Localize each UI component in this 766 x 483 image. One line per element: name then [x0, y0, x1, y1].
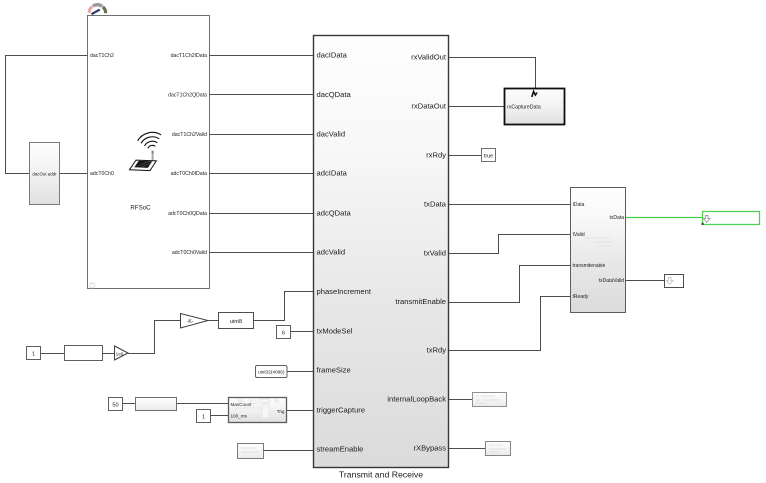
svg-text:rxRdy: rxRdy — [426, 151, 446, 160]
svg-text:dacT1Ch2: dacT1Ch2 — [90, 53, 114, 59]
svg-text:streamEnable: streamEnable — [317, 445, 364, 454]
svg-text:adcQData: adcQData — [317, 209, 352, 218]
svg-text:rxDataOut: rxDataOut — [411, 102, 446, 111]
svg-text:100_ms: 100_ms — [231, 414, 248, 419]
svg-text:adcIData: adcIData — [317, 169, 348, 178]
svg-text:dacT1Ch2QData: dacT1Ch2QData — [168, 93, 207, 99]
svg-text:dacIData: dacIData — [317, 51, 348, 60]
svg-text:adcT0Ch0Valid: adcT0Ch0Valid — [172, 250, 207, 256]
svg-text:tReady: tReady — [573, 294, 589, 300]
svg-text:Transmit and Receive: Transmit and Receive — [339, 470, 423, 480]
svg-text:dacT1Ch2Valid: dacT1Ch2Valid — [172, 132, 207, 138]
svg-text:Trig: Trig — [277, 409, 285, 414]
svg-text:transmitenable: transmitenable — [573, 263, 606, 269]
svg-text:triggerCapture: triggerCapture — [317, 406, 366, 415]
svg-text:txRdy: txRdy — [427, 346, 447, 355]
svg-text:50: 50 — [112, 403, 118, 409]
svg-text:transmitEnable: transmitEnable — [395, 297, 446, 306]
svg-text:rXBypass: rXBypass — [414, 444, 447, 453]
svg-text:adcValid: adcValid — [317, 248, 346, 257]
svg-text:1: 1 — [202, 415, 205, 421]
svg-text:rxCaptureData: rxCaptureData — [507, 105, 541, 111]
svg-text:uint32(4096): uint32(4096) — [258, 369, 285, 374]
svg-text:txDataValid: txDataValid — [599, 278, 624, 284]
svg-text:txData: txData — [424, 200, 447, 209]
svg-text:6: 6 — [282, 331, 285, 337]
svg-text:txModeSel: txModeSel — [317, 327, 353, 336]
svg-text:adcT0Ch0IData: adcT0Ch0IData — [171, 171, 207, 177]
svg-text:dacQData: dacQData — [317, 90, 352, 99]
svg-text:RFSoC: RFSoC — [130, 205, 151, 212]
svg-text:IData: IData — [573, 202, 585, 208]
svg-text:dacOut addr: dacOut addr — [32, 172, 57, 177]
svg-text:rxValidOut: rxValidOut — [411, 53, 447, 62]
svg-text:uint8: uint8 — [230, 319, 242, 325]
svg-text:1e6: 1e6 — [116, 351, 124, 356]
svg-text:dacValid: dacValid — [317, 130, 346, 139]
svg-text:MaxCount: MaxCount — [231, 402, 253, 407]
svg-text:internalLoopBack: internalLoopBack — [387, 395, 446, 404]
svg-text:IValid: IValid — [573, 232, 585, 238]
svg-text:adcT0Ch0: adcT0Ch0 — [90, 171, 114, 177]
svg-text:txData: txData — [610, 215, 625, 221]
svg-text:txValid: txValid — [424, 249, 446, 258]
svg-text:true: true — [484, 154, 493, 160]
svg-text:dacT1Ch2IData: dacT1Ch2IData — [171, 53, 207, 59]
svg-text:phaseIncrement: phaseIncrement — [317, 287, 372, 296]
svg-text:adcT0Ch0QData: adcT0Ch0QData — [168, 211, 207, 217]
svg-text:1: 1 — [32, 352, 35, 358]
svg-text:frameSize: frameSize — [317, 366, 351, 375]
svg-text:-K-: -K- — [187, 319, 194, 325]
